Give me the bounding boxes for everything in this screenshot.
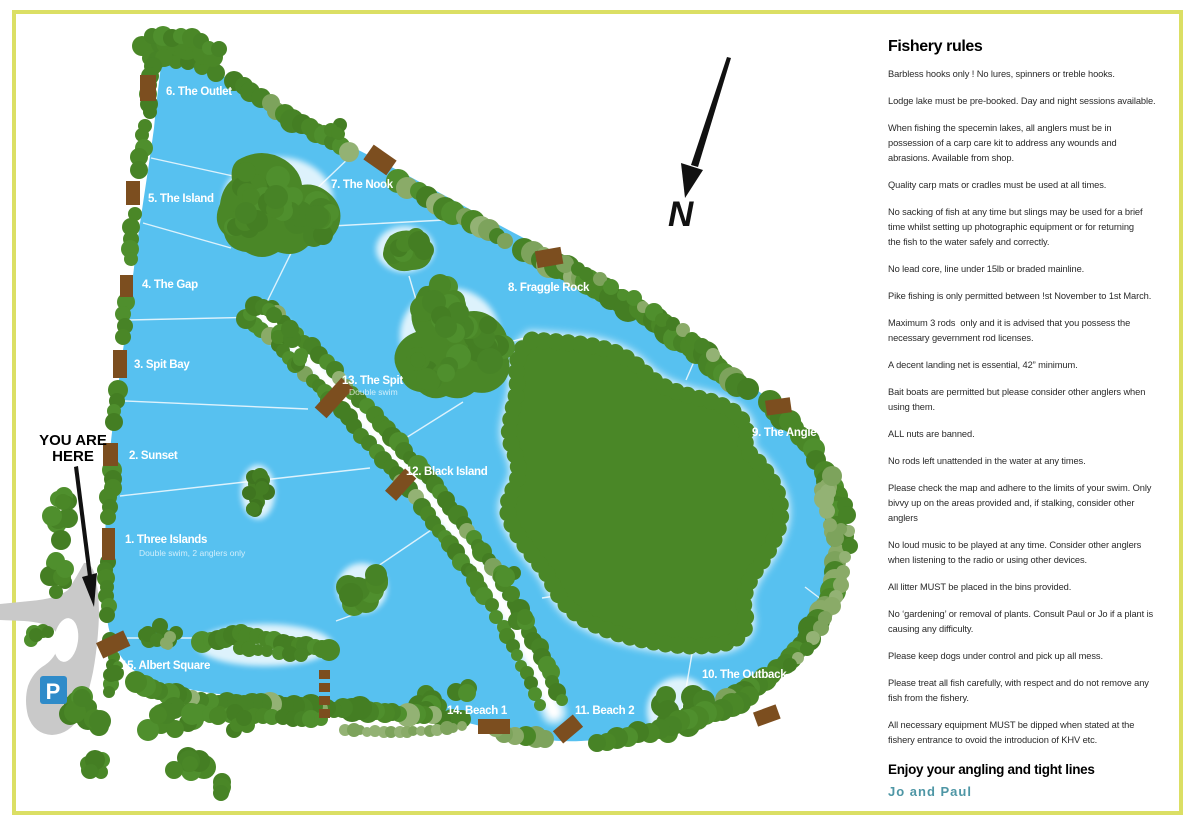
svg-text:10. The Outback: 10. The Outback — [702, 669, 787, 681]
svg-text:N: N — [668, 195, 694, 234]
svg-text:HERE: HERE — [52, 448, 94, 465]
svg-text:15. Albert Square: 15. Albert Square — [121, 660, 210, 672]
svg-text:Double swim, 2 anglers only: Double swim, 2 anglers only — [139, 548, 246, 558]
svg-text:4. The Gap: 4. The Gap — [142, 279, 198, 291]
svg-text:13. The Spit: 13. The Spit — [342, 375, 403, 387]
svg-text:6. The Outlet: 6. The Outlet — [166, 86, 232, 98]
svg-text:1. Three Islands: 1. Three Islands — [125, 534, 207, 546]
svg-text:8. Fraggle Rock: 8. Fraggle Rock — [508, 282, 590, 294]
svg-text:7. The Nook: 7. The Nook — [331, 179, 394, 191]
svg-text:Double swim: Double swim — [349, 387, 398, 397]
svg-text:9. The Angle: 9. The Angle — [752, 427, 816, 439]
svg-text:12. Black Island: 12. Black Island — [406, 466, 488, 478]
svg-text:14. Beach 1: 14. Beach 1 — [447, 705, 508, 717]
svg-text:3. Spit Bay: 3. Spit Bay — [134, 359, 190, 371]
svg-text:2. Sunset: 2. Sunset — [129, 450, 178, 462]
svg-text:YOU ARE: YOU ARE — [39, 432, 107, 449]
svg-text:11. Beach 2: 11. Beach 2 — [575, 705, 634, 717]
svg-text:5. The Island: 5. The Island — [148, 193, 214, 205]
svg-text:P: P — [46, 679, 61, 704]
